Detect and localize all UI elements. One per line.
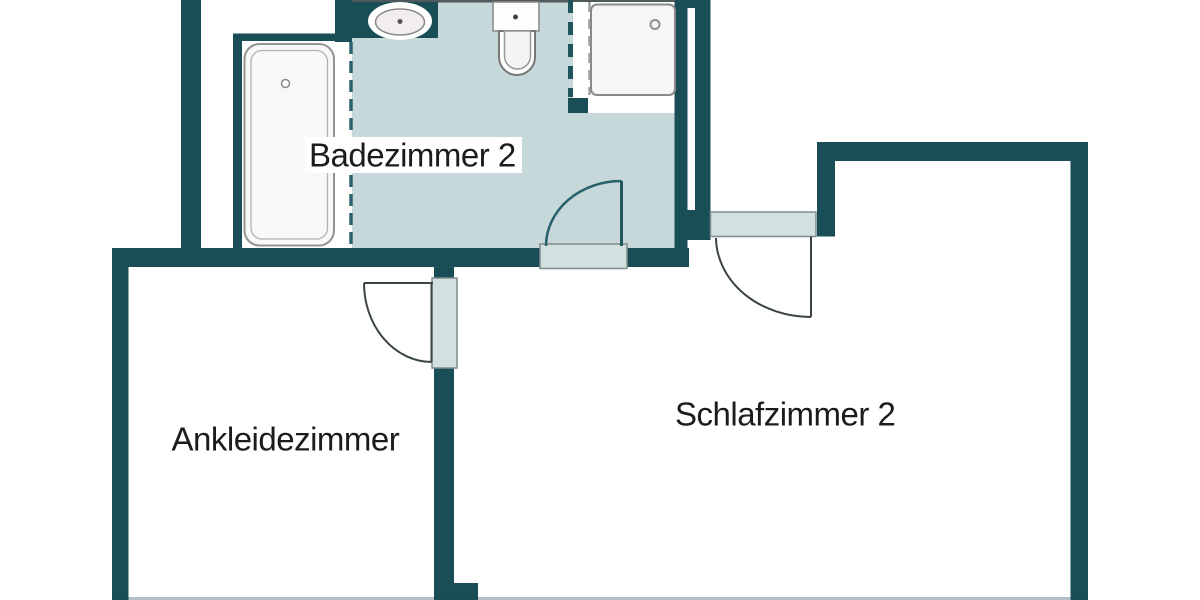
svg-text:Ankleidezimmer: Ankleidezimmer: [172, 421, 400, 458]
svg-text:Badezimmer 2: Badezimmer 2: [309, 137, 516, 174]
svg-text:Schlafzimmer 2: Schlafzimmer 2: [675, 396, 895, 433]
